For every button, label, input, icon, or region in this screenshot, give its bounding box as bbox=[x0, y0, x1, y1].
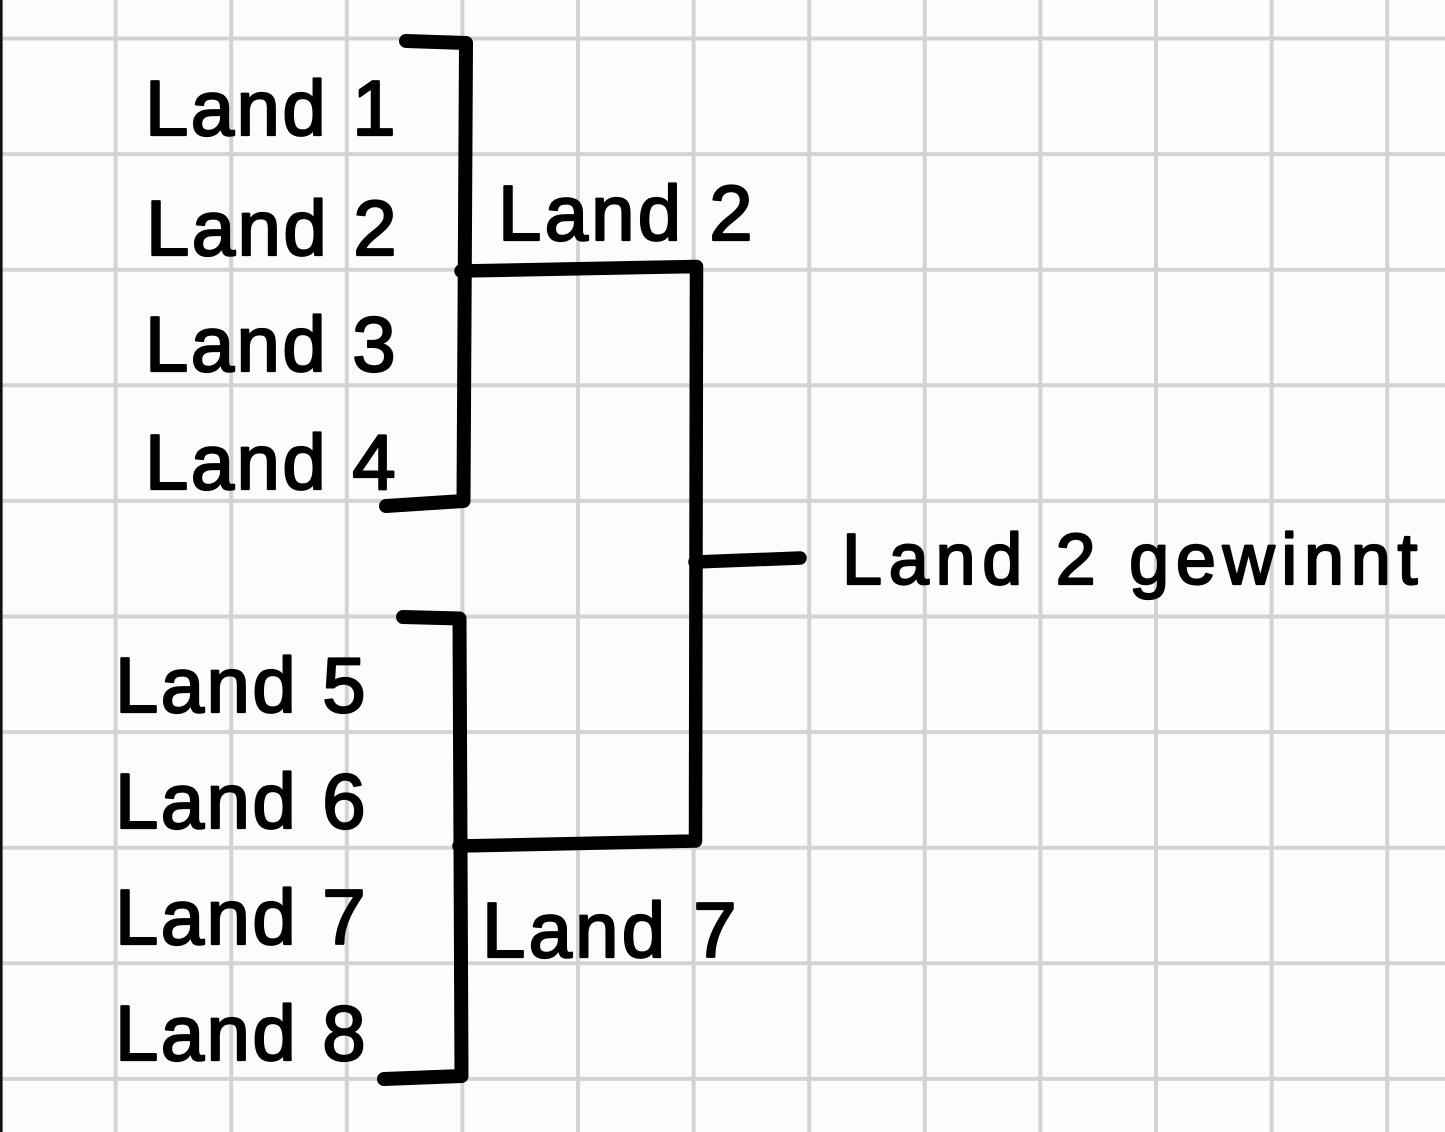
svg-text:Land 6: Land 6 bbox=[115, 757, 368, 845]
svg-text:Land 4: Land 4 bbox=[145, 418, 398, 506]
svg-text:Land 3: Land 3 bbox=[145, 300, 398, 388]
svg-text:Land 7: Land 7 bbox=[482, 886, 740, 974]
svg-text:Land 2: Land 2 bbox=[498, 169, 756, 257]
svg-text:Land 7: Land 7 bbox=[115, 873, 368, 961]
svg-text:Land 5: Land 5 bbox=[115, 641, 368, 729]
svg-text:Land 8: Land 8 bbox=[115, 989, 368, 1077]
svg-text:Land 2 gewinnt: Land 2 gewinnt bbox=[842, 520, 1424, 600]
svg-text:Land 1: Land 1 bbox=[145, 64, 398, 152]
svg-text:Land 2: Land 2 bbox=[146, 184, 399, 272]
